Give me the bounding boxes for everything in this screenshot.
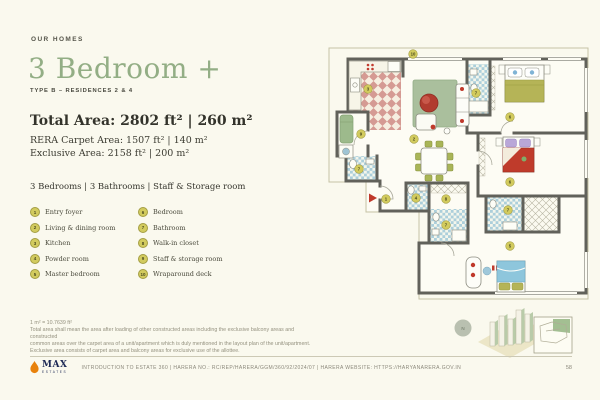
svg-text:N: N <box>461 326 464 331</box>
legend-col-2: 6Bedroom7Bathroom8Walk-in closet9Staff &… <box>138 207 224 279</box>
staff-room <box>339 115 353 158</box>
living-room <box>413 80 469 134</box>
legend-label: Bathroom <box>153 224 186 232</box>
legend-label: Master bedroom <box>45 270 100 278</box>
legend-item: 9Staff & storage room <box>138 254 224 264</box>
legend-number: 5 <box>30 269 40 279</box>
disclaimer: 1 m² = 10.7639 ft² Total area shall mean… <box>30 320 315 355</box>
egg-chair <box>420 94 438 112</box>
legend-number: 10 <box>138 269 148 279</box>
legend-label: Staff & storage room <box>153 255 223 263</box>
legend-item: 6Bedroom <box>138 207 224 217</box>
legend-label: Kitchen <box>45 239 70 247</box>
footer-text: INTRODUCTION TO ESTATE 360 | HARERA no.:… <box>81 365 461 371</box>
eyebrow: OUR HOMES <box>31 36 84 43</box>
footer-divider <box>30 356 572 357</box>
bedroom-mid <box>496 137 540 172</box>
legend-item: 4Powder room <box>30 254 116 264</box>
wardrobe-hatch-4 <box>431 184 466 193</box>
svg-text:10: 10 <box>411 52 416 57</box>
legend-number: 8 <box>138 238 148 248</box>
legend-label: Entry foyer <box>45 208 82 216</box>
legend-number: 7 <box>138 223 148 233</box>
legend-col-1: 1Entry foyer2Living & dining room3Kitche… <box>30 207 116 279</box>
brand-logo: MAX ESTATES <box>30 361 67 374</box>
legend-item: 2Living & dining room <box>30 223 116 233</box>
legend-item: 8Walk-in closet <box>138 238 224 248</box>
kitchen-floor-ext <box>368 112 401 130</box>
legend-item: 5Master bedroom <box>30 269 116 279</box>
disclaimer-line: common areas over the carpet area of a u… <box>30 341 315 348</box>
legend-label: Bedroom <box>153 208 183 216</box>
bedroom-top <box>499 65 550 102</box>
plan-vignettes: N <box>445 300 580 358</box>
legend-item: 1Entry foyer <box>30 207 116 217</box>
page-subtitle: TYPE B – RESIDENCES 2 & 4 <box>30 88 133 94</box>
disclaimer-line: Exclusive area consists of carpet area a… <box>30 348 315 355</box>
brochure-page: OUR HOMES 3 Bedroom + TYPE B – RESIDENCE… <box>0 0 600 400</box>
legend-number: 1 <box>30 207 40 217</box>
legend-number: 3 <box>30 238 40 248</box>
disclaimer-line: Total area shall mean the area after loa… <box>30 327 315 341</box>
legend-item: 3Kitchen <box>30 238 116 248</box>
legend-label: Walk-in closet <box>153 239 199 247</box>
legend-label: Living & dining room <box>45 224 115 232</box>
legend-number: 9 <box>138 254 148 264</box>
legend-number: 6 <box>138 207 148 217</box>
legend-label: Wraparound deck <box>153 270 212 278</box>
wardrobe-hatch-2 <box>479 138 485 176</box>
brand-name: MAX <box>42 361 67 370</box>
brand-sub: ESTATES <box>42 371 67 374</box>
legend-number: 2 <box>30 223 40 233</box>
key-plan <box>534 317 572 353</box>
legend-number: 4 <box>30 254 40 264</box>
flame-icon <box>30 361 39 374</box>
exclusive-area: Exclusive Area: 2158 ft² | 200 m² <box>30 148 189 159</box>
page-title: 3 Bedroom + <box>28 52 221 85</box>
legend-item: 7Bathroom <box>138 223 224 233</box>
floorplan: 103769276148775 <box>327 46 591 306</box>
configuration-line: 3 Bedrooms | 3 Bathrooms | Staff & Stora… <box>30 182 245 192</box>
total-area: Total Area: 2802 ft² | 260 m² <box>30 113 252 129</box>
page-number: 58 <box>566 365 572 371</box>
footer: MAX ESTATES INTRODUCTION TO ESTATE 360 |… <box>30 361 572 374</box>
legend: 1Entry foyer2Living & dining room3Kitche… <box>30 207 224 279</box>
rera-carpet-area: RERA Carpet Area: 1507 ft² | 140 m² <box>30 135 208 146</box>
legend-label: Powder room <box>45 255 89 263</box>
legend-item: 10Wraparound deck <box>138 269 224 279</box>
wardrobe-hatch-3 <box>524 197 558 231</box>
disclaimer-line: 1 m² = 10.7639 ft² <box>30 320 315 327</box>
